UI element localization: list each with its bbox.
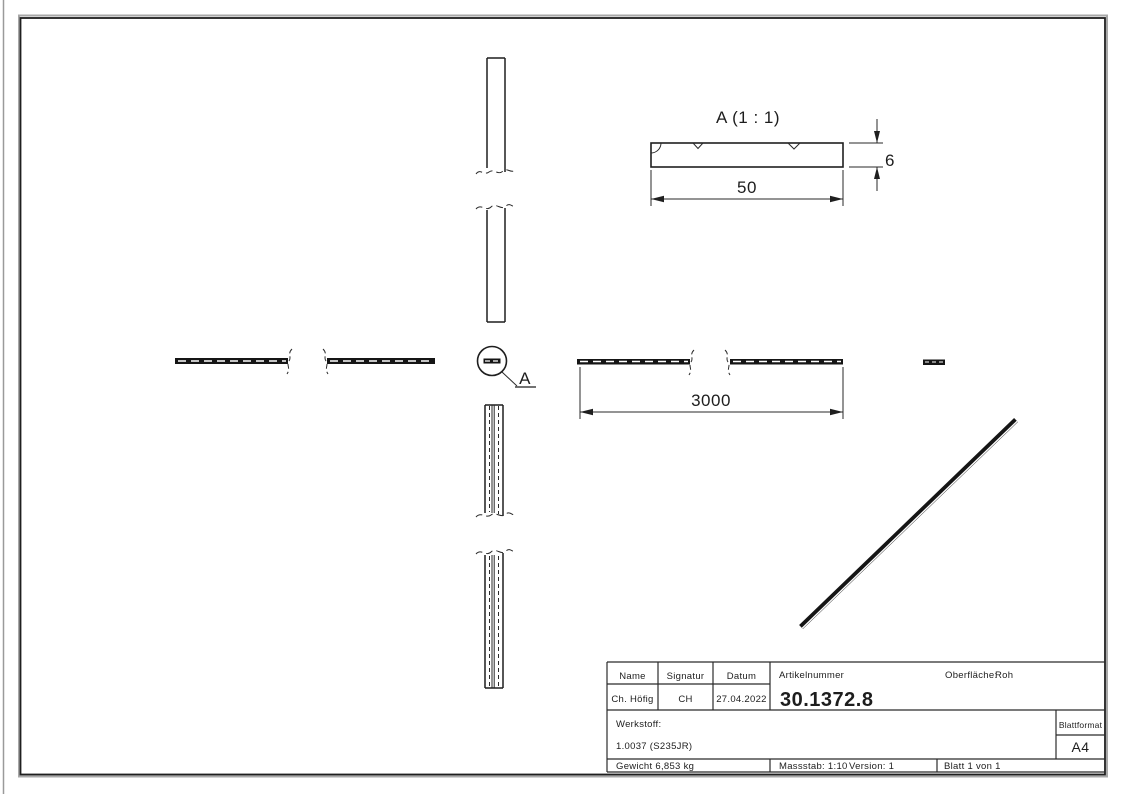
- detail-view-title: A (1 : 1): [716, 108, 780, 127]
- title-block-weight: Gewicht 6,853 kg: [616, 761, 694, 772]
- title-block-signature-value: CH: [678, 694, 692, 705]
- title-block-format-value: A4: [1071, 739, 1089, 755]
- end-view-small: [923, 360, 945, 366]
- dim-thickness-value: 6: [885, 151, 895, 170]
- dim-length-value: 3000: [691, 391, 731, 410]
- title-block-name-value: Ch. Höfig: [611, 694, 653, 705]
- drawing-canvas: A 3000 A (1 : 1): [0, 0, 1123, 794]
- sheet-frame: [4, 0, 1108, 794]
- title-block-version: Version: 1: [849, 761, 894, 772]
- drawing-sheet: A 3000 A (1 : 1): [0, 0, 1123, 794]
- title-block-date-value: 27.04.2022: [716, 694, 767, 705]
- title-block-article-number: 30.1372.8: [780, 689, 873, 711]
- title-block-sheet: Blatt 1 von 1: [944, 761, 1001, 772]
- detail-ref-letter: A: [519, 369, 531, 388]
- title-block-header-signature: Signatur: [667, 671, 705, 682]
- title-block-header-date: Datum: [727, 671, 756, 682]
- title-block-material-label: Werkstoff:: [616, 719, 661, 730]
- title-block-scale: Massstab: 1:10: [779, 761, 848, 772]
- title-block-format-label: Blattformat: [1059, 720, 1103, 730]
- title-block-header-article: Artikelnummer: [779, 670, 844, 681]
- dim-width-value: 50: [737, 178, 757, 197]
- title-block-surface-label: Oberfläche:: [945, 670, 997, 681]
- title-block-material-value: 1.0037 (S235JR): [616, 741, 692, 752]
- title-block-surface-value: Roh: [995, 670, 1013, 681]
- title-block-header-name: Name: [619, 671, 646, 682]
